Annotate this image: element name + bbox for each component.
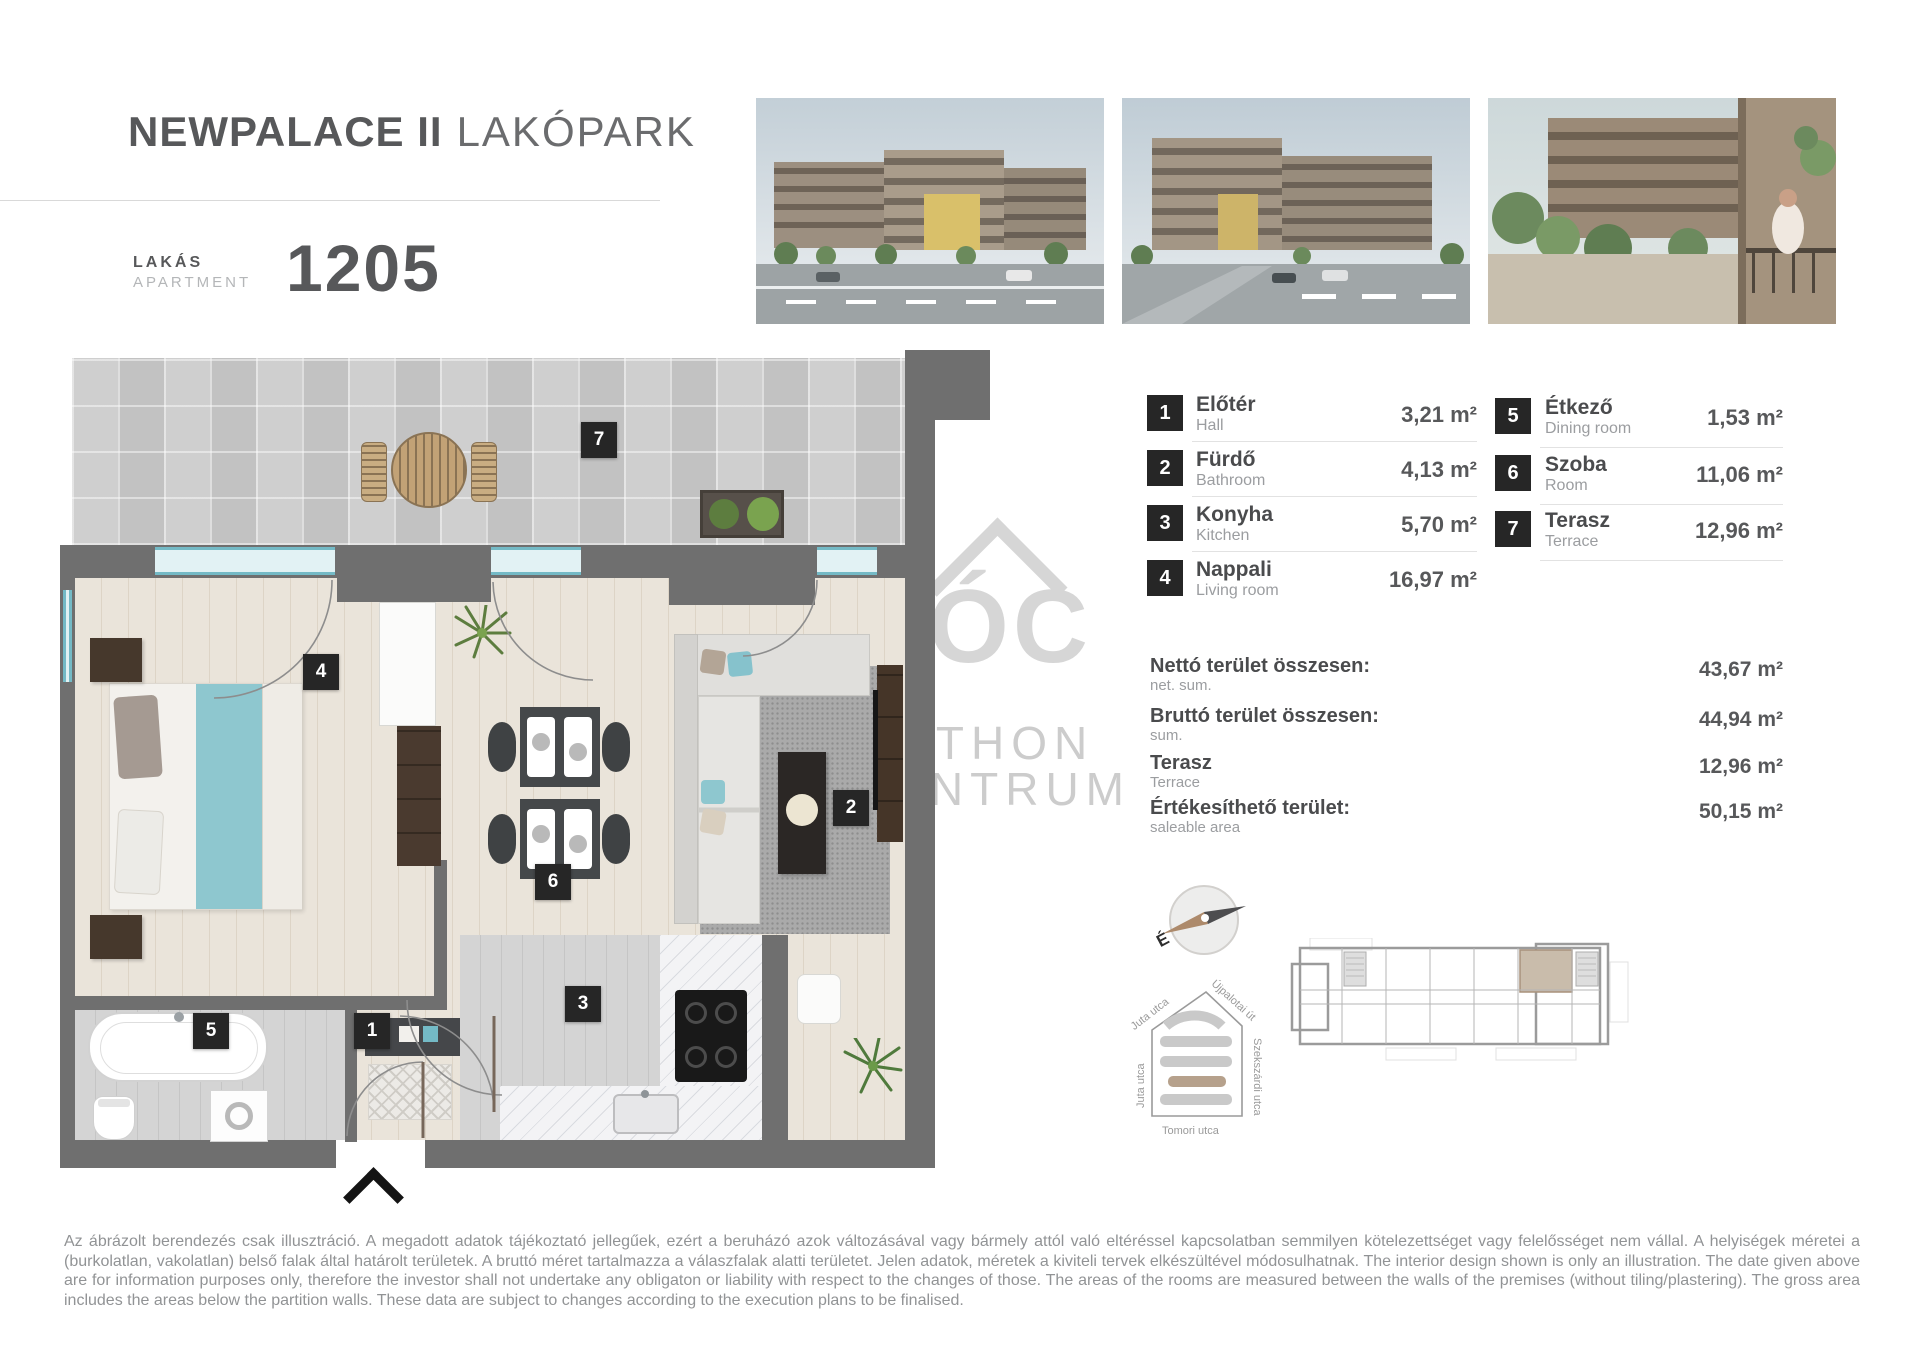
legend-num-1: 1 — [1147, 395, 1183, 431]
project-name: NEWPALACE II — [128, 108, 443, 155]
legend-area-dining: 1,53 m² — [1653, 405, 1783, 431]
legend-row-hall: Előtér Hall — [1196, 393, 1256, 435]
street-label-bottom: Tomori utca — [1162, 1125, 1220, 1137]
street-label-top-left: Juta utca — [1129, 995, 1172, 1032]
building-photo-3 — [1488, 98, 1836, 324]
floor-plan: 7 4 6 2 5 1 3 — [60, 350, 990, 1170]
legend-row-bathroom: Fürdő Bathroom — [1196, 448, 1265, 490]
room-label-bathroom: 2 — [833, 790, 869, 826]
site-map: Juta utca Újpalotai út Szekszárdi utca J… — [1122, 968, 1282, 1148]
page-title: NEWPALACE IILAKÓPARK — [128, 108, 696, 156]
legend-row-room: Szoba Room — [1545, 453, 1607, 495]
summary-net-value: 43,67 m² — [1623, 658, 1783, 682]
summary-terrace-value: 12,96 m² — [1623, 755, 1783, 779]
building-overview-plan — [1290, 938, 1635, 1068]
legend-num-4: 4 — [1147, 560, 1183, 596]
legend-row-dining: Étkező Dining room — [1545, 396, 1631, 438]
summary-net: Nettó terület összesen: net. sum. — [1150, 655, 1370, 695]
legend-row-terrace: Terasz Terrace — [1545, 509, 1610, 551]
legend-num-3: 3 — [1147, 505, 1183, 541]
highlighted-apartment-unit — [1520, 950, 1572, 992]
legend-num-2: 2 — [1147, 450, 1183, 486]
summary-gross-value: 44,94 m² — [1623, 708, 1783, 732]
legend-area-bathroom: 4,13 m² — [1347, 457, 1477, 483]
room-label-kitchen: 3 — [565, 986, 601, 1022]
compass-icon: É — [1152, 872, 1252, 968]
project-type: LAKÓPARK — [457, 108, 696, 155]
disclaimer-text: Az ábrázolt berendezés csak illusztráció… — [64, 1232, 1860, 1310]
header-divider — [0, 200, 660, 201]
summary-saleable: Értékesíthető terület: saleable area — [1150, 797, 1350, 837]
legend-area-kitchen: 5,70 m² — [1347, 512, 1477, 538]
legend-area-terrace: 12,96 m² — [1653, 518, 1783, 544]
legend-separator — [1540, 560, 1783, 561]
legend-separator — [1540, 447, 1783, 448]
legend-separator — [1192, 441, 1477, 442]
summary-gross: Bruttó terület összesen: sum. — [1150, 705, 1379, 745]
summary-terrace: Terasz Terrace — [1150, 752, 1212, 792]
room-label-dining: 5 — [193, 1013, 229, 1049]
unit-label-hu: LAKÁS — [133, 253, 251, 273]
floorplan-sheet: NEWPALACE IILAKÓPARK LAKÁS APARTMENT 120… — [0, 0, 1920, 1357]
room-label-hall: 1 — [354, 1013, 390, 1049]
unit-label-en: APARTMENT — [133, 273, 251, 293]
legend-row-kitchen: Konyha Kitchen — [1196, 503, 1273, 545]
legend-area-living: 16,97 m² — [1347, 567, 1477, 593]
entrance-arrow-icon — [343, 1167, 404, 1228]
legend-num-6: 6 — [1495, 455, 1531, 491]
terrace-render-image — [1488, 98, 1836, 324]
street-label-left: Juta utca — [1135, 1062, 1147, 1108]
building-photo-2 — [1122, 98, 1470, 324]
legend-separator — [1192, 551, 1477, 552]
room-label-terrace: 7 — [581, 422, 617, 458]
legend-separator — [1540, 504, 1783, 505]
legend-separator — [1192, 496, 1477, 497]
street-label-right: Szekszárdi utca — [1251, 1038, 1263, 1117]
legend-area-hall: 3,21 m² — [1347, 402, 1477, 428]
room-label-room: 6 — [535, 864, 571, 900]
summary-saleable-value: 50,15 m² — [1623, 800, 1783, 824]
apartment-number: 1205 — [286, 230, 441, 306]
room-label-living: 4 — [303, 654, 339, 690]
legend-num-7: 7 — [1495, 511, 1531, 547]
building-photo-1 — [756, 98, 1104, 324]
legend-row-living: Nappali Living room — [1196, 558, 1279, 600]
legend-area-room: 11,06 m² — [1653, 462, 1783, 488]
legend-num-5: 5 — [1495, 398, 1531, 434]
unit-labels: LAKÁS APARTMENT — [133, 253, 251, 293]
building-render-image — [1122, 98, 1470, 324]
building-render-image — [756, 98, 1104, 324]
